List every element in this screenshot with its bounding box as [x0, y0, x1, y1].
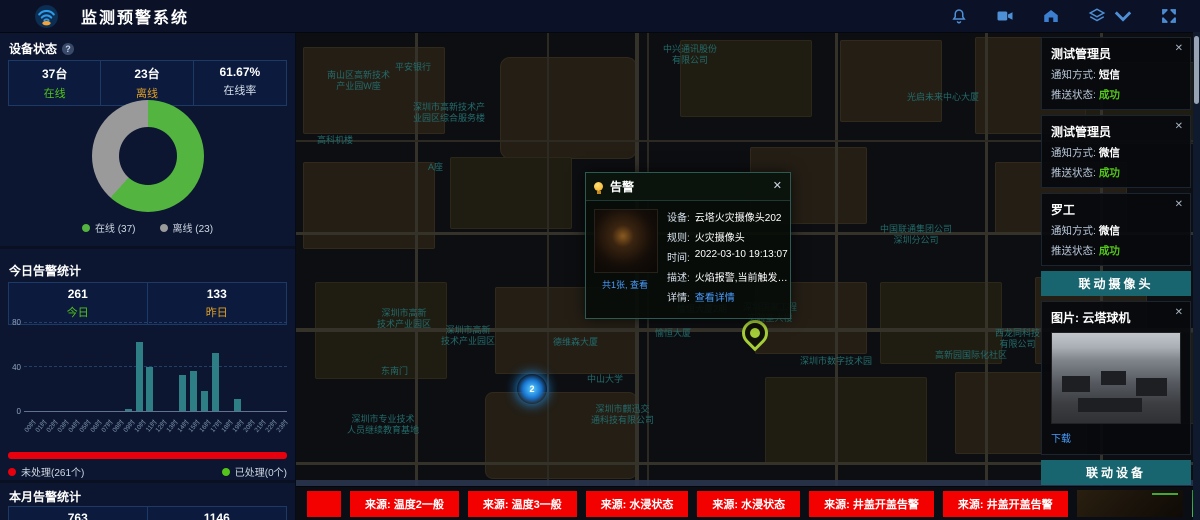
- stat-online-rate: 61.67% 在线率: [194, 61, 286, 105]
- map-cluster-marker[interactable]: 2: [517, 374, 547, 404]
- map-place-label: 中兴通讯股份 有限公司: [663, 44, 717, 66]
- bar-slot: [166, 322, 177, 411]
- bell-icon[interactable]: [950, 7, 968, 25]
- alarm-field-value: 火灾摄像头: [695, 229, 745, 244]
- monitor-shape: [1136, 378, 1167, 396]
- ticker-snapshot-image[interactable]: [1077, 490, 1183, 517]
- today-alarm-title: 今日告警统计: [9, 262, 81, 279]
- notification-status: 推送状态: 成功: [1051, 243, 1181, 258]
- alarm-lamp-icon: [594, 182, 603, 191]
- map-place-label: 高科机楼: [317, 135, 353, 146]
- close-icon[interactable]: ✕: [1175, 44, 1183, 54]
- y-axis-tick-label: 0: [8, 407, 21, 416]
- bar-slot: [35, 322, 46, 411]
- map-place-label: 深圳市高新 技术产业园区: [441, 325, 495, 347]
- y-axis-tick-label: 80: [8, 318, 21, 327]
- bar: [125, 409, 132, 411]
- divider: [0, 246, 295, 249]
- alarm-field-value: 2022-03-10 19:13:07: [695, 249, 788, 264]
- field-label: 通知方式:: [1051, 147, 1096, 159]
- bar-slot: [265, 322, 276, 411]
- alarm-popup: 告警 ✕ 共1张, 查看 设备:云塔火灾摄像头202规则:火灾摄像头时间:202…: [585, 172, 791, 319]
- field-label: 推送状态:: [1051, 245, 1096, 257]
- scrollbar-thumb[interactable]: [1194, 36, 1199, 104]
- green-dot-icon: [222, 468, 230, 476]
- notification-status: 推送状态: 成功: [1051, 87, 1181, 102]
- bar-slot: [221, 322, 232, 411]
- map-place-label: 德维森大厦: [553, 337, 598, 348]
- ticker-alert-item[interactable]: 来源: 温度2一般: [350, 491, 459, 517]
- map-place-label: 中山大学: [587, 374, 623, 385]
- bar-slot: [90, 322, 101, 411]
- alarm-image-block: 共1张, 查看: [594, 209, 658, 309]
- bar-slot: [177, 322, 188, 411]
- notification-card: ✕测试管理员通知方式: 短信推送状态: 成功: [1041, 37, 1191, 110]
- field-value: 短信: [1096, 69, 1120, 81]
- alarm-field-row: 规则:火灾摄像头: [667, 229, 791, 244]
- alarm-field-row: 描述:火焰报警,当前触发值为...: [667, 269, 791, 284]
- hourly-alarm-bar-chart: 04080 00时01时02时03时04时05时06时07时08时09时10时1…: [8, 322, 289, 444]
- linked-camera-header: 联动摄像头: [1041, 271, 1191, 296]
- map-place-label: 平安银行: [395, 62, 431, 73]
- monitor-shape: [1078, 398, 1142, 412]
- chart-plot-area: [24, 322, 287, 412]
- notification-method: 通知方式: 微信: [1051, 223, 1181, 238]
- bar: [201, 391, 208, 411]
- bar-slot: [144, 322, 155, 411]
- ticker-alert-item[interactable]: 来源: 井盖开盖告警: [809, 491, 934, 517]
- status-success: 成功: [1096, 89, 1120, 101]
- device-status-donut-chart: [92, 100, 204, 212]
- field-label: 推送状态:: [1051, 167, 1096, 179]
- status-success: 成功: [1096, 245, 1120, 257]
- bar-slot: [155, 322, 166, 411]
- map-place-label: 中国联通集团公司 深圳分公司: [880, 224, 952, 246]
- map-canvas[interactable]: 中兴通讯股份 有限公司平安银行南山区高新技术 产业园W座深圳市高新技术产 业园区…: [295, 32, 1200, 520]
- bar-slot: [57, 322, 68, 411]
- notification-method: 通知方式: 短信: [1051, 67, 1181, 82]
- map-place-label: 高新园国际化社区: [935, 350, 1007, 361]
- divider: [0, 480, 295, 483]
- stat-month-last: 1146: [148, 507, 287, 520]
- camera-card: ✕图片: 云塔球机下载: [1041, 301, 1191, 455]
- ticker-alert-item[interactable]: [307, 491, 341, 517]
- close-icon[interactable]: ✕: [773, 181, 782, 192]
- alarm-popup-header: 告警 ✕: [586, 173, 790, 201]
- donut-legend-label: 离线 (23): [173, 220, 214, 235]
- bar-slot: [101, 322, 112, 411]
- bar-slot: [112, 322, 123, 411]
- help-icon[interactable]: ?: [62, 43, 74, 55]
- notification-name: 测试管理员: [1051, 45, 1181, 62]
- alarm-ticker: 来源: 温度2一般来源: 温度3一般来源: 水浸状态来源: 水浸状态来源: 井盖…: [295, 486, 1200, 520]
- map-place-label: 光启未来中心大厦: [907, 92, 979, 103]
- scrollbar-track[interactable]: [1193, 32, 1200, 520]
- notification-name: 罗工: [1051, 201, 1181, 218]
- map-place-label: 愉恒大厦: [655, 328, 691, 339]
- bar-slot: [134, 322, 145, 411]
- status-success: 成功: [1096, 167, 1120, 179]
- close-icon[interactable]: ✕: [1175, 200, 1183, 210]
- field-value: 微信: [1096, 225, 1120, 237]
- alarm-field-row: 设备:云塔火灾摄像头202: [667, 209, 791, 224]
- alarm-field-label: 设备:: [667, 209, 690, 224]
- alarm-field-row: 时间:2022-03-10 19:13:07: [667, 249, 791, 264]
- chevron-down-icon[interactable]: [1114, 7, 1132, 25]
- today-alarm-stats: 261 今日 133 昨日: [8, 282, 287, 325]
- bar: [234, 399, 241, 411]
- map-place-label: 深圳市高新技术产 业园区综合服务楼: [413, 102, 485, 124]
- alarm-popup-title: 告警: [610, 178, 773, 195]
- stat-online: 37台 在线: [9, 61, 101, 105]
- camera-card-title: 图片: 云塔球机: [1051, 309, 1181, 326]
- map-place-label: 东南门: [381, 366, 408, 377]
- bar-slot: [188, 322, 199, 411]
- layers-icon[interactable]: [1088, 7, 1106, 25]
- bar: [136, 342, 143, 411]
- bar: [212, 353, 219, 411]
- map-place-label: 南山区高新技术 产业园W座: [327, 70, 390, 92]
- bar-slot: [123, 322, 134, 411]
- unhandled-legend: 未处理(261个): [8, 464, 84, 479]
- stat-offline: 23台 离线: [101, 61, 193, 105]
- bar: [146, 367, 153, 412]
- camera-snapshot-image[interactable]: [1051, 332, 1181, 424]
- ticker-alert-item[interactable]: 来源: 井盖开盖告警: [943, 491, 1068, 517]
- alarm-field-value: 云塔火灾摄像头202: [695, 209, 782, 224]
- stat-today: 261 今日: [9, 283, 148, 324]
- bar: [179, 375, 186, 411]
- field-label: 通知方式:: [1051, 225, 1096, 237]
- notification-card: ✕罗工通知方式: 微信推送状态: 成功: [1041, 193, 1191, 266]
- alarm-field-label: 详情:: [667, 289, 690, 304]
- linked-device-header: 联动设备: [1041, 460, 1191, 485]
- bar-slot: [68, 322, 79, 411]
- x-axis-tick: 23时: [276, 414, 287, 442]
- alarm-snapshot-image[interactable]: [594, 209, 658, 273]
- download-link[interactable]: 下载: [1051, 430, 1071, 445]
- video-camera-icon[interactable]: [996, 7, 1014, 25]
- left-panel: 设备状态 ? 37台 在线 23台 离线 61.67% 在线率 在线 (37)离…: [0, 32, 296, 520]
- fullscreen-icon[interactable]: [1160, 7, 1178, 25]
- legend-dot-icon: [82, 224, 90, 232]
- ticker-alert-item[interactable]: 来源: 水浸状态: [697, 491, 800, 517]
- close-icon[interactable]: ✕: [1175, 308, 1183, 318]
- field-value: 微信: [1096, 147, 1120, 159]
- notification-method: 通知方式: 微信: [1051, 145, 1181, 160]
- bar-slot: [276, 322, 287, 411]
- bar: [190, 371, 197, 411]
- red-dot-icon: [8, 468, 16, 476]
- map-place-label: 西龙同科技 有限公司: [995, 328, 1040, 350]
- alarm-field-value: 火焰报警,当前触发值为...: [695, 269, 791, 284]
- month-alarm-stats: 763 1146: [8, 506, 287, 520]
- donut-legend-item: 在线 (37): [82, 220, 136, 235]
- map-place-label: 深圳市专业技术 人员继续教育基地: [347, 414, 419, 436]
- map-place-label: 深圳市高新 技术产业园区: [377, 308, 431, 330]
- alarm-field-label: 规则:: [667, 229, 690, 244]
- bar-slot: [232, 322, 243, 411]
- close-icon[interactable]: ✕: [1175, 122, 1183, 132]
- notification-name: 测试管理员: [1051, 123, 1181, 140]
- bar-slot: [210, 322, 221, 411]
- field-label: 通知方式:: [1051, 69, 1096, 81]
- bar-slot: [46, 322, 57, 411]
- month-alarm-title: 本月告警统计: [9, 488, 81, 505]
- field-label: 推送状态:: [1051, 89, 1096, 101]
- stat-month-current: 763: [9, 507, 148, 520]
- ticker-alert-item[interactable]: 来源: 温度3一般: [468, 491, 577, 517]
- app-logo-icon: [34, 4, 59, 29]
- map-place-label: 深圳市麒迅交 通科技有限公司: [591, 404, 654, 426]
- bar-slot: [199, 322, 210, 411]
- donut-legend-item: 离线 (23): [160, 220, 214, 235]
- ticker-alert-item[interactable]: 来源: 水浸状态: [586, 491, 689, 517]
- progress-legend: 未处理(261个) 已处理(0个): [8, 464, 287, 479]
- handled-legend: 已处理(0个): [222, 464, 287, 479]
- monitor-shape: [1062, 376, 1090, 392]
- alarm-field-label: 描述:: [667, 269, 690, 284]
- device-status-title: 设备状态 ?: [9, 40, 74, 57]
- alarm-image-view-link[interactable]: 共1张, 查看: [594, 278, 656, 291]
- map-place-label: 深圳市数字技术园: [800, 356, 872, 367]
- bar-slot: [254, 322, 265, 411]
- stat-yesterday: 133 昨日: [148, 283, 287, 324]
- bar-slot: [79, 322, 90, 411]
- alarm-field-row: 详情:查看详情: [667, 289, 791, 304]
- bar-slot: [243, 322, 254, 411]
- right-panel: ✕测试管理员通知方式: 短信推送状态: 成功✕测试管理员通知方式: 微信推送状态…: [1041, 37, 1191, 520]
- bar-slot: [24, 322, 35, 411]
- map-place-label: A座: [428, 162, 443, 173]
- legend-dot-icon: [160, 224, 168, 232]
- donut-legend: 在线 (37)离线 (23): [0, 220, 295, 235]
- page-title: 监测预警系统: [81, 4, 189, 28]
- app-header: 监测预警系统: [0, 0, 1200, 33]
- home-icon[interactable]: [1042, 7, 1060, 25]
- notification-status: 推送状态: 成功: [1051, 165, 1181, 180]
- alarm-field-label: 时间:: [667, 249, 690, 264]
- y-axis-tick-label: 40: [8, 363, 21, 372]
- donut-legend-label: 在线 (37): [95, 220, 136, 235]
- alarm-detail-link[interactable]: 查看详情: [695, 289, 735, 304]
- unhandled-progress-bar: [8, 452, 287, 459]
- x-axis-tick-label: 23时: [273, 417, 289, 434]
- notification-card: ✕测试管理员通知方式: 微信推送状态: 成功: [1041, 115, 1191, 188]
- monitor-shape: [1101, 371, 1127, 385]
